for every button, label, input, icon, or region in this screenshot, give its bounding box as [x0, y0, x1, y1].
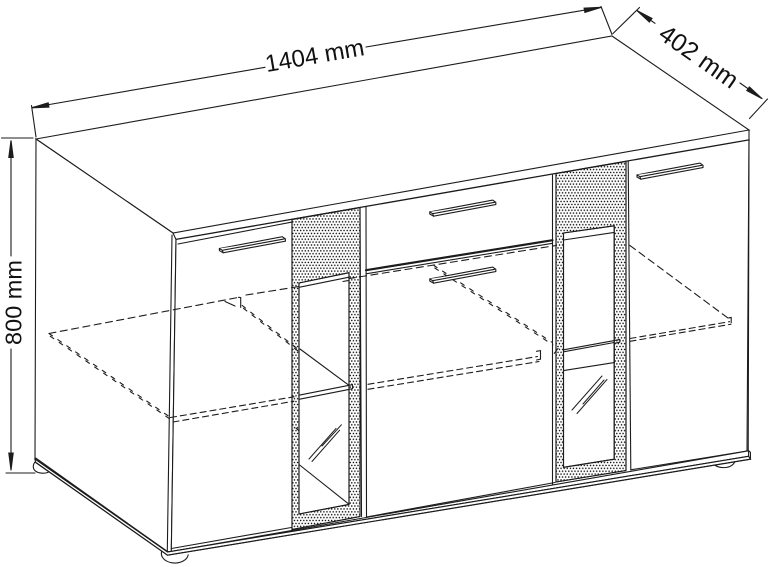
svg-text:800 mm: 800 mm: [1, 260, 27, 345]
